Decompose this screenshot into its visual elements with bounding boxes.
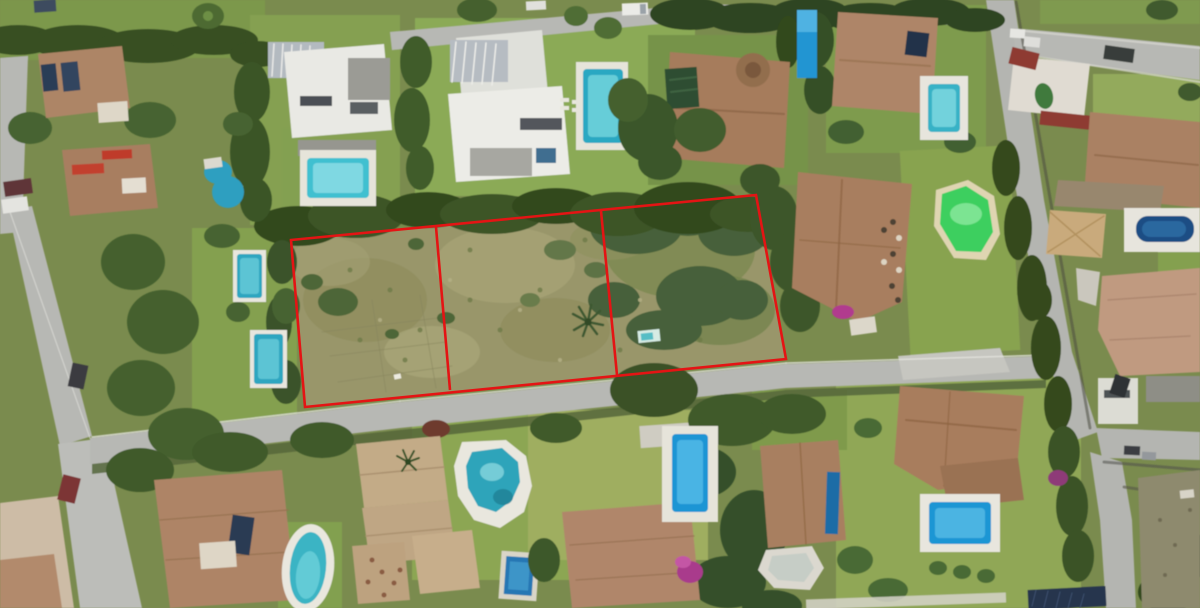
tree-masses-69 <box>977 569 995 583</box>
buildings-pools-15 <box>348 58 390 100</box>
vacant-plot-42 <box>448 278 452 282</box>
buildings-pools-70 <box>1142 221 1186 237</box>
overlay-canopies-2 <box>638 144 682 180</box>
tree-masses-45 <box>530 413 582 443</box>
tree-masses-35 <box>127 290 199 354</box>
buildings-pools-123 <box>480 463 504 481</box>
vacant-plot-15 <box>301 274 323 290</box>
tree-masses-67 <box>929 561 947 575</box>
palm-tree <box>405 459 411 465</box>
buildings-pools-117 <box>677 440 703 504</box>
buildings-pools-3 <box>97 101 128 123</box>
buildings-pools-51 <box>797 10 817 32</box>
tree-masses-80 <box>124 102 176 138</box>
buildings-pools-83 <box>895 297 901 303</box>
buildings-pools-145 <box>1173 543 1177 547</box>
buildings-pools-92 <box>0 554 62 608</box>
buildings-pools-120 <box>508 561 530 590</box>
lap-pool <box>825 472 840 534</box>
tree-masses-77 <box>564 6 588 26</box>
vacant-plot-38 <box>583 238 588 243</box>
overlay-canopies-1 <box>608 78 648 122</box>
buildings-pools-38 <box>560 106 569 110</box>
car <box>1024 36 1041 48</box>
house-roof <box>1098 268 1200 376</box>
tree-masses-44 <box>290 422 354 458</box>
buildings-pools-97 <box>199 541 237 569</box>
tree-masses-17 <box>394 88 430 152</box>
tree-masses-79 <box>8 112 52 144</box>
tree-masses-38 <box>223 112 253 136</box>
vacant-plot-34 <box>538 288 543 293</box>
tree-masses-76 <box>594 17 622 39</box>
tree-masses-57 <box>1044 376 1072 432</box>
bougainvillea <box>832 305 854 319</box>
vacant-plot-41 <box>378 318 382 322</box>
buildings-pools-80 <box>890 251 896 257</box>
vacant-plot-43 <box>518 308 522 312</box>
car <box>1142 452 1156 461</box>
tree-masses-72 <box>828 120 864 144</box>
vacant-plot-14 <box>318 288 358 316</box>
satellite-image <box>0 0 1200 608</box>
house-roof <box>154 470 296 608</box>
tree-masses-18 <box>406 146 434 190</box>
car <box>34 0 57 13</box>
buildings-pools-81 <box>896 267 902 273</box>
buildings-pools-35 <box>536 148 556 163</box>
vacant-plot-44 <box>558 358 562 362</box>
vacant-plot-28 <box>520 293 540 307</box>
vacant-plot-26 <box>544 240 576 260</box>
buildings-pools-148 <box>1180 489 1195 498</box>
buildings-pools-82 <box>889 283 895 289</box>
vacant-plot-24 <box>716 280 768 320</box>
bougainvillea <box>1048 470 1068 486</box>
tree-masses-64 <box>854 418 882 438</box>
buildings-pools-85 <box>881 259 887 265</box>
buildings-pools-74 <box>1076 268 1100 306</box>
buildings-pools-139 <box>935 508 985 538</box>
red-foliage-bush <box>422 420 450 438</box>
overlay-canopies-6 <box>528 538 560 582</box>
vacant-plot-35 <box>468 248 473 253</box>
aerial-photo-canvas <box>0 0 1200 608</box>
tree-masses-16 <box>400 36 432 88</box>
tree-masses-71 <box>1146 0 1178 20</box>
buildings-pools-17 <box>350 102 378 114</box>
tree-masses-60 <box>1062 530 1094 582</box>
vacant-plot-23 <box>588 282 640 318</box>
tree-masses-54 <box>1004 196 1032 260</box>
buildings-pools-36 <box>560 98 569 102</box>
buildings-pools-124 <box>493 489 513 505</box>
red-awning <box>102 149 132 160</box>
tree-masses-75 <box>203 11 213 21</box>
buildings-pools-109 <box>398 568 403 573</box>
buildings-pools-147 <box>1163 573 1167 577</box>
palm-tree <box>585 319 592 326</box>
vacant-plot-22 <box>626 310 702 350</box>
vacant-plot-27 <box>584 262 608 278</box>
tree-masses-39 <box>204 224 240 248</box>
buildings-pools-7 <box>122 177 147 193</box>
buildings-pools-16 <box>300 96 332 106</box>
vacant-plot-16 <box>408 238 424 250</box>
solar-roof <box>450 40 508 82</box>
vacant-plot-39 <box>618 348 623 353</box>
vacant-plot-45 <box>638 298 642 302</box>
overlay-canopies-7 <box>1024 280 1052 320</box>
tree-masses-65 <box>837 546 873 574</box>
tree-masses-15 <box>240 178 272 222</box>
tree-masses-43 <box>192 432 268 472</box>
buildings-pools-107 <box>366 580 371 585</box>
vacant-plot-2 <box>435 227 575 303</box>
solar-panels <box>41 63 59 91</box>
buildings-pools-105 <box>380 570 385 575</box>
tree-masses-56 <box>1031 316 1061 380</box>
buildings-pools-46 <box>745 62 761 78</box>
vacant-plot-30 <box>388 288 393 293</box>
vacant-plot-31 <box>418 328 423 333</box>
car <box>526 0 546 10</box>
vacant-plot-36 <box>358 338 363 343</box>
buildings-pools-33 <box>470 148 532 176</box>
buildings-pools-104 <box>370 558 375 563</box>
buildings-pools-108 <box>382 593 387 598</box>
vacant-plot-18 <box>385 329 399 339</box>
buildings-pools-79 <box>896 235 902 241</box>
car <box>1010 28 1026 38</box>
tree-masses-53 <box>992 140 1020 196</box>
tree-masses-34 <box>101 234 165 290</box>
vacant-plot-37 <box>403 358 408 363</box>
cars-6 <box>640 4 646 14</box>
tree-masses-41 <box>226 302 250 322</box>
vacant-plot-29 <box>348 268 353 273</box>
vacant-plot-32 <box>468 298 473 303</box>
vacant-plot-48 <box>641 332 654 340</box>
buildings-pools-161 <box>258 339 279 379</box>
gray-building <box>1146 376 1200 402</box>
red-awning <box>72 163 104 175</box>
buildings-pools-158 <box>240 258 259 294</box>
court <box>665 67 700 109</box>
tree-masses-36 <box>107 360 175 416</box>
buildings-pools-100 <box>412 530 480 594</box>
overlay-canopies-4 <box>674 108 726 152</box>
buildings-pools-90 <box>950 203 982 225</box>
tree-masses-24 <box>945 8 1005 32</box>
tree-masses-68 <box>953 565 971 579</box>
buildings-pools-84 <box>881 227 887 233</box>
buildings-pools-114 <box>675 556 691 568</box>
tree-masses-58 <box>1048 426 1080 478</box>
buildings-pools-23 <box>212 176 244 208</box>
tree-masses-27 <box>776 16 800 68</box>
buildings-pools-144 <box>1158 518 1162 522</box>
buildings-pools-21 <box>313 163 363 193</box>
solar-panels <box>61 61 81 92</box>
buildings-pools-146 <box>1188 508 1192 512</box>
terrace-furniture <box>890 219 896 225</box>
vacant-plot-40 <box>698 338 703 343</box>
tree-masses-47 <box>758 394 826 434</box>
overlay-canopies-5 <box>740 164 780 196</box>
buildings-pools-106 <box>392 581 397 586</box>
car <box>1124 446 1140 456</box>
buildings-pools-57 <box>932 89 956 127</box>
solar-panels <box>905 31 930 58</box>
buildings-pools-34 <box>520 118 562 130</box>
vacant-plot-33 <box>498 328 503 333</box>
vacant-plot-17 <box>437 312 455 324</box>
